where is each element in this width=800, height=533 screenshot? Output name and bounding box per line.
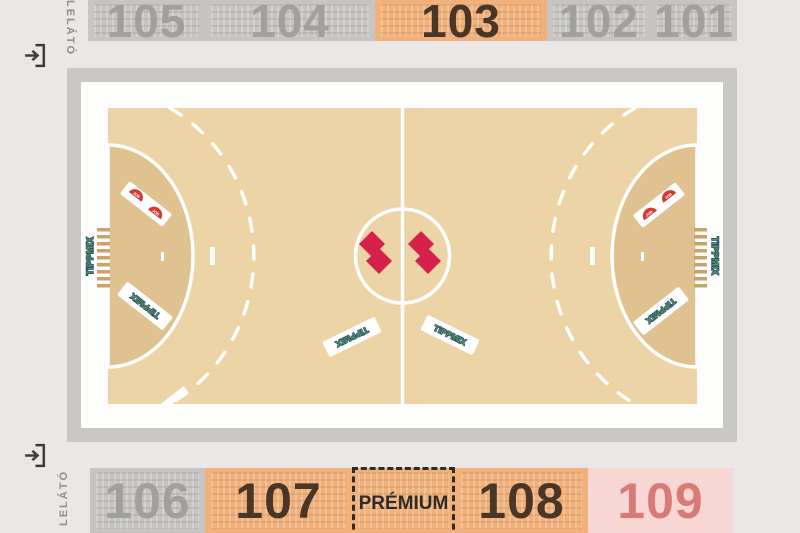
section-label: 104: [250, 0, 330, 41]
penalty-line-right: [590, 247, 595, 265]
goalkeeper-mark-left: [161, 252, 164, 261]
section-108[interactable]: 108: [455, 468, 588, 533]
section-104[interactable]: 104: [205, 0, 375, 41]
stand-label-bottom: LELÁTÓ: [58, 474, 70, 526]
premium-label: PRÉMIUM: [359, 491, 449, 515]
handball-court: TiPPMIX TiPPMIX JOB JOB: [81, 82, 723, 428]
section-label: 107: [235, 476, 321, 526]
tippmix-vertical-text-right: TiPPMIX: [710, 237, 720, 276]
entrance-arrow-icon: [22, 442, 49, 469]
penalty-line-left: [210, 247, 215, 265]
goal-net-right: [694, 228, 707, 288]
stand-label-top: LELÁTÓ: [64, 0, 76, 42]
section-label: 102: [559, 0, 639, 41]
section-label: 103: [421, 0, 501, 41]
entrance-arrow-icon: [22, 42, 49, 69]
goalkeeper-mark-right: [641, 252, 644, 261]
section-109[interactable]: 109: [588, 468, 733, 533]
section-premium[interactable]: PRÉMIUM: [352, 467, 455, 533]
goal-net-left: [97, 228, 110, 288]
arena-seating-map: LELÁTÓ 105 104 103 102 101: [0, 0, 800, 533]
section-101[interactable]: 101: [651, 0, 737, 41]
section-label: 108: [478, 476, 564, 526]
section-103[interactable]: 103: [375, 0, 547, 41]
tippmix-vertical-text-left: TiPPMIX: [85, 237, 95, 276]
section-107[interactable]: 107: [205, 468, 352, 533]
section-label: 109: [617, 476, 703, 526]
section-102[interactable]: 102: [547, 0, 651, 41]
section-label: 101: [654, 0, 734, 41]
section-label: 105: [107, 0, 187, 41]
section-106[interactable]: 106: [90, 468, 205, 533]
section-label: 106: [104, 476, 190, 526]
section-105[interactable]: 105: [88, 0, 205, 41]
